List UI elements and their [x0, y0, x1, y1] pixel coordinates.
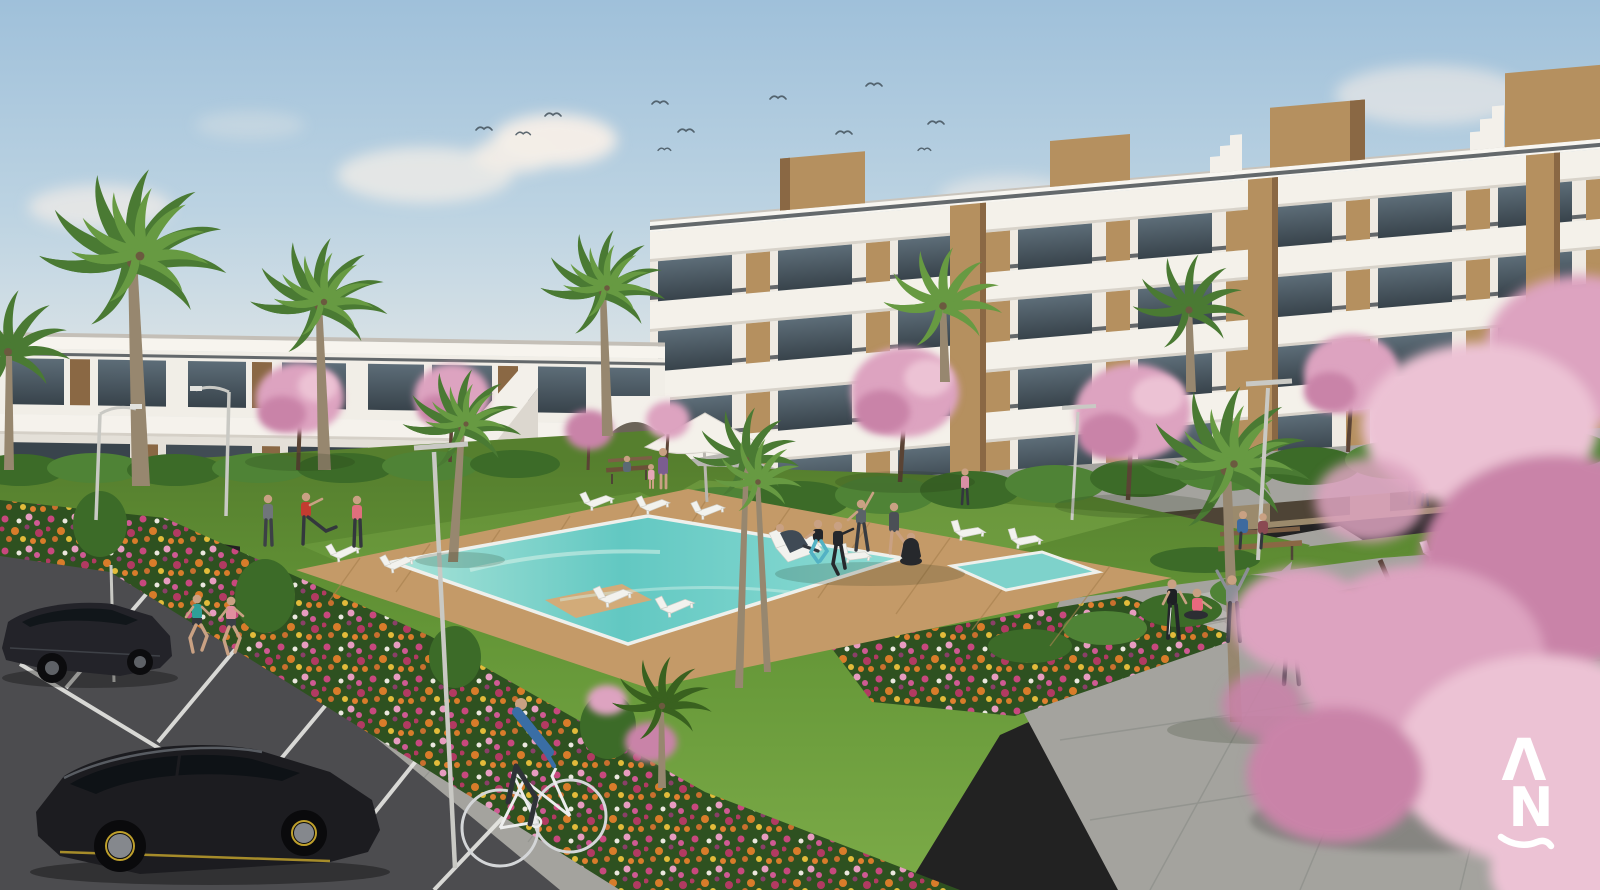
architectural-render: Λ N	[0, 0, 1600, 890]
developer-logo: Λ N	[1501, 726, 1554, 846]
person-on-center-bench	[623, 456, 631, 472]
logo-letter-n: N	[1508, 776, 1553, 839]
